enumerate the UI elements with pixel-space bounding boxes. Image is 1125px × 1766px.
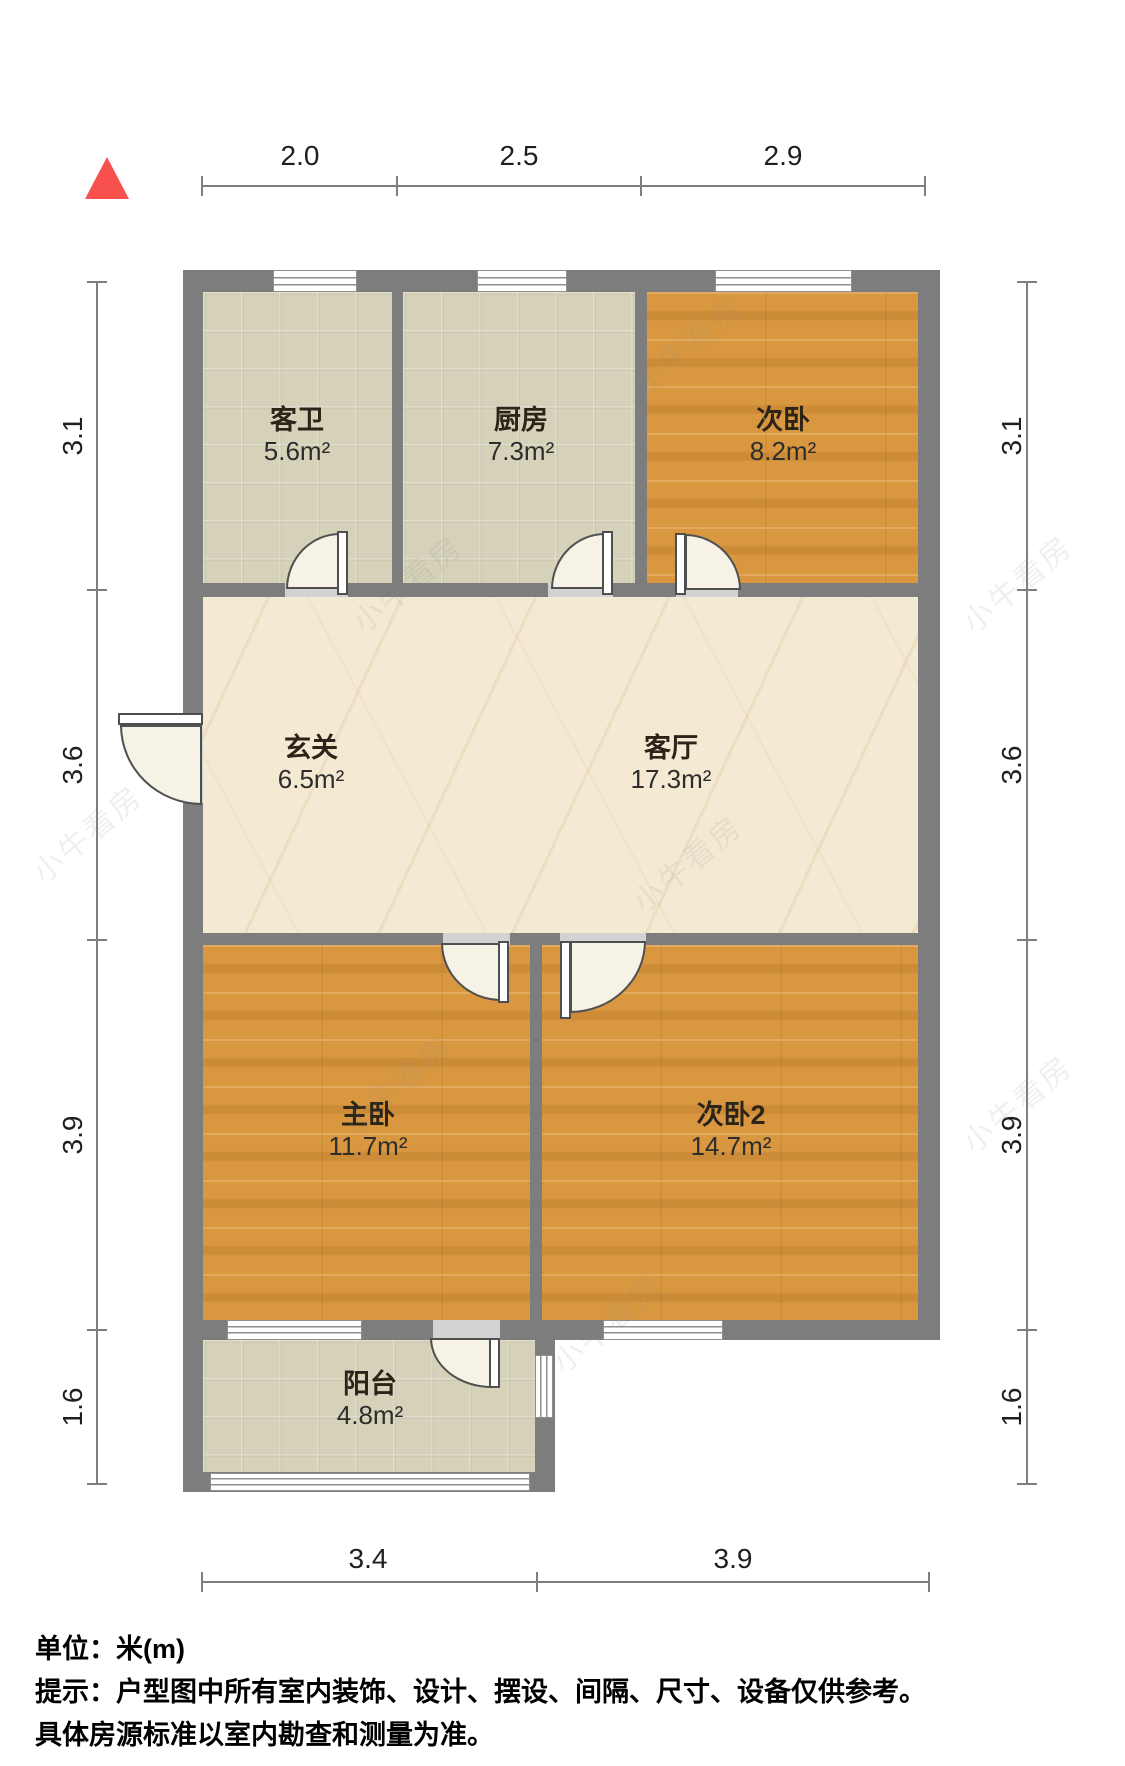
room-name: 厨房	[441, 404, 601, 436]
window-balcony-right	[535, 1355, 553, 1418]
dim-tick	[640, 176, 642, 196]
dim-tick	[396, 176, 398, 196]
dim-line-top	[202, 185, 925, 187]
room-area: 7.3m²	[441, 436, 601, 467]
door-swing-entry	[120, 725, 202, 805]
room-name: 客卫	[217, 404, 377, 436]
room-label-master-bedroom: 主卧 11.7m²	[288, 1099, 448, 1162]
window-master	[227, 1320, 362, 1340]
window-bedroom2	[603, 1320, 723, 1340]
window-bedroom-top	[715, 270, 852, 292]
wall-left	[183, 292, 203, 1492]
dim-label-left-3: 3.9	[58, 1100, 88, 1170]
room-label-entry-hall: 玄关 6.5m²	[231, 732, 391, 795]
footer-tip-line1: 提示：户型图中所有室内装饰、设计、摆设、间隔、尺寸、设备仅供参考。	[35, 1671, 926, 1714]
room-area: 17.3m²	[591, 764, 751, 795]
room-name: 客厅	[591, 732, 751, 764]
dim-tick	[87, 1483, 107, 1485]
door-leaf-entry	[118, 713, 203, 725]
dim-label-top-2: 2.5	[484, 140, 554, 172]
dim-label-bottom-2: 3.9	[698, 1543, 768, 1575]
watermark-text: 小牛看房	[951, 523, 1080, 642]
room-area: 4.8m²	[290, 1400, 450, 1431]
dim-label-right-4: 1.6	[997, 1372, 1027, 1442]
window-kitchen	[477, 270, 567, 292]
floorplan-canvas: 客卫 5.6m² 厨房 7.3m² 次卧 8.2m² 玄关 6.5m² 客厅 1…	[0, 0, 1125, 1766]
dim-tick	[1017, 281, 1037, 283]
dim-tick	[1017, 1483, 1037, 1485]
footer-notes: 单位：米(m) 提示：户型图中所有室内装饰、设计、摆设、间隔、尺寸、设备仅供参考…	[35, 1628, 926, 1757]
room-label-bedroom2: 次卧2 14.7m²	[651, 1099, 811, 1162]
room-area: 6.5m²	[231, 764, 391, 795]
room-name: 次卧2	[651, 1099, 811, 1131]
window-balcony-bottom	[210, 1473, 530, 1491]
door-leaf-balcony	[489, 1338, 500, 1388]
dim-label-right-3: 3.9	[997, 1100, 1027, 1170]
door-leaf-kitchen	[602, 531, 613, 595]
dim-label-top-3: 2.9	[748, 140, 818, 172]
room-label-living-room: 客厅 17.3m²	[591, 732, 751, 795]
dim-tick	[87, 589, 107, 591]
wall-kitchen-bedroom	[635, 292, 647, 583]
room-label-kitchen: 厨房 7.3m²	[441, 404, 601, 467]
room-area: 5.6m²	[217, 436, 377, 467]
dim-label-left-1: 3.1	[58, 401, 88, 471]
door-leaf-master	[498, 941, 509, 1003]
north-arrow-icon	[85, 157, 129, 199]
dim-tick	[1017, 589, 1037, 591]
door-leaf-bedroom-top	[675, 533, 686, 595]
dim-line-left	[96, 282, 98, 1484]
room-label-bedroom-top: 次卧 8.2m²	[703, 404, 863, 467]
room-area: 11.7m²	[288, 1131, 448, 1162]
room-name: 主卧	[288, 1099, 448, 1131]
dim-tick	[201, 1572, 203, 1592]
wall-bath-kitchen	[392, 292, 403, 583]
door-leaf-bedroom2	[560, 941, 571, 1019]
dim-tick	[1017, 939, 1037, 941]
dim-tick	[536, 1572, 538, 1592]
dim-tick	[928, 1572, 930, 1592]
room-label-balcony: 阳台 4.8m²	[290, 1368, 450, 1431]
room-name: 阳台	[290, 1368, 450, 1400]
dim-label-bottom-1: 3.4	[333, 1543, 403, 1575]
door-leaf-guest-bath	[337, 531, 348, 595]
opening-balcony	[433, 1320, 500, 1340]
wall-right	[918, 292, 940, 1340]
dim-tick	[201, 176, 203, 196]
room-area: 14.7m²	[651, 1131, 811, 1162]
dim-tick	[87, 1329, 107, 1331]
dim-tick	[87, 939, 107, 941]
room-label-guest-bath: 客卫 5.6m²	[217, 404, 377, 467]
dim-tick	[1017, 1329, 1037, 1331]
footer-tip-line2: 具体房源标准以室内勘查和测量为准。	[35, 1714, 926, 1757]
dim-label-top-1: 2.0	[265, 140, 335, 172]
dim-tick	[87, 281, 107, 283]
dim-label-left-4: 1.6	[58, 1372, 88, 1442]
dim-line-bottom	[202, 1581, 930, 1583]
room-name: 次卧	[703, 404, 863, 436]
room-name: 玄关	[231, 732, 391, 764]
window-guest-bath	[273, 270, 357, 292]
dim-label-right-2: 3.6	[997, 730, 1027, 800]
footer-unit-line: 单位：米(m)	[35, 1628, 926, 1671]
dim-tick	[924, 176, 926, 196]
dim-label-right-1: 3.1	[997, 401, 1027, 471]
room-area: 8.2m²	[703, 436, 863, 467]
dim-label-left-2: 3.6	[58, 730, 88, 800]
wall-master-bedroom2	[530, 945, 542, 1320]
